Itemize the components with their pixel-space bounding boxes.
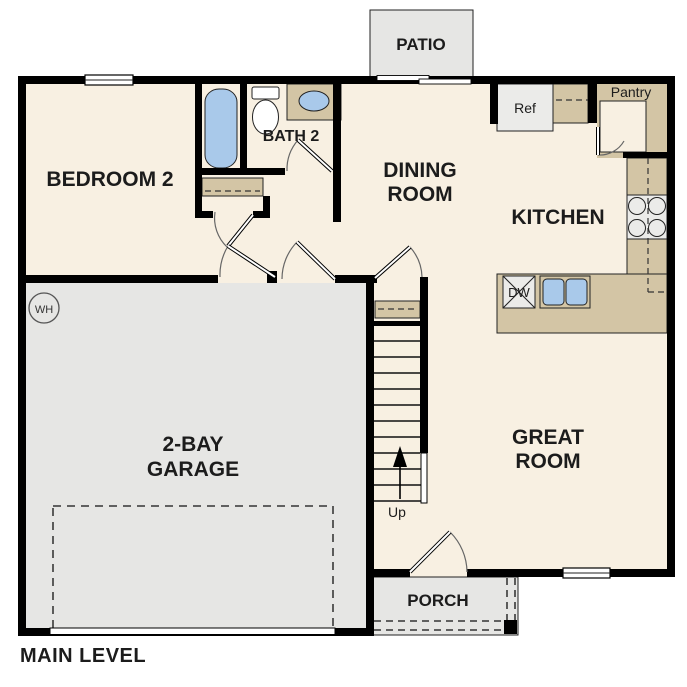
great-room-label-line2: ROOM: [515, 450, 580, 473]
plan-title: MAIN LEVEL: [20, 645, 146, 667]
bathtub: [205, 89, 237, 168]
wall-hall-garage: [335, 275, 377, 283]
dishwasher: DW: [503, 276, 535, 308]
sink-basin: [543, 279, 564, 305]
wall-closet-east: [263, 196, 270, 218]
toilet: [252, 87, 279, 134]
wall-front-b: [467, 569, 563, 577]
sink-basin: [566, 279, 587, 305]
pantry-interior: [600, 101, 646, 152]
wall-bath-south: [195, 168, 285, 175]
kitchen-counter-top: [553, 84, 590, 123]
wall-pantry-stub: [588, 84, 597, 123]
bath2-label: BATH 2: [263, 128, 320, 145]
refrigerator-label: Ref: [514, 100, 536, 116]
wall-ref-stub: [490, 84, 498, 124]
wall-stair-east: [420, 277, 428, 453]
kitchen-label: KITCHEN: [511, 206, 604, 229]
garage-label-line2: GARAGE: [147, 458, 239, 481]
coat-closet: [375, 301, 420, 318]
wall-garage-house: [366, 275, 374, 636]
bedroom2-label: BEDROOM 2: [46, 168, 173, 191]
floorplan-page: Ref DW WH: [0, 0, 687, 687]
bath2-sink: [299, 91, 329, 111]
stove: [627, 195, 667, 239]
great-room-window: [563, 568, 610, 578]
wall-bedroom-bath: [195, 84, 202, 218]
wall-bath-east: [333, 84, 341, 222]
wall-tub-stall: [240, 84, 247, 168]
wall-bedroom-garage: [18, 275, 218, 283]
bedroom2-window: [85, 75, 133, 85]
floorplan-canvas: Ref DW WH: [0, 0, 687, 687]
refrigerator: Ref: [497, 84, 553, 131]
dining-room-label-line2: ROOM: [387, 183, 452, 206]
porch-post: [504, 620, 517, 634]
pantry-label: Pantry: [611, 84, 651, 100]
wall-front-c: [610, 569, 675, 577]
wall-exterior-right: [667, 76, 675, 577]
wall-pantry-south: [623, 152, 667, 158]
stairs-up-label: Up: [388, 504, 406, 520]
toilet-tank: [252, 87, 279, 99]
garage-label-line1: 2-BAY: [162, 433, 223, 456]
wall-exterior-left: [18, 76, 26, 636]
stair-handrail: [421, 453, 427, 503]
porch-label: PORCH: [407, 591, 468, 610]
patio-label: PATIO: [396, 35, 445, 54]
wall-coat-closet: [374, 321, 424, 326]
great-room-label-line1: GREAT: [512, 426, 584, 449]
closet-shelf: [202, 178, 263, 196]
wall-closet-south-a: [195, 211, 213, 218]
dining-room-label-line1: DINING: [383, 159, 457, 182]
slider-panel: [419, 79, 471, 84]
kitchen-sink: [540, 276, 590, 308]
bedroom2-closet: [202, 178, 263, 196]
stove-box: [627, 195, 667, 239]
kitchen-counter-top-slab: [553, 84, 588, 123]
dishwasher-label: DW: [508, 285, 530, 300]
water-heater-label: WH: [35, 304, 53, 316]
wall-front-a: [366, 569, 410, 577]
garage-door: [50, 628, 335, 635]
